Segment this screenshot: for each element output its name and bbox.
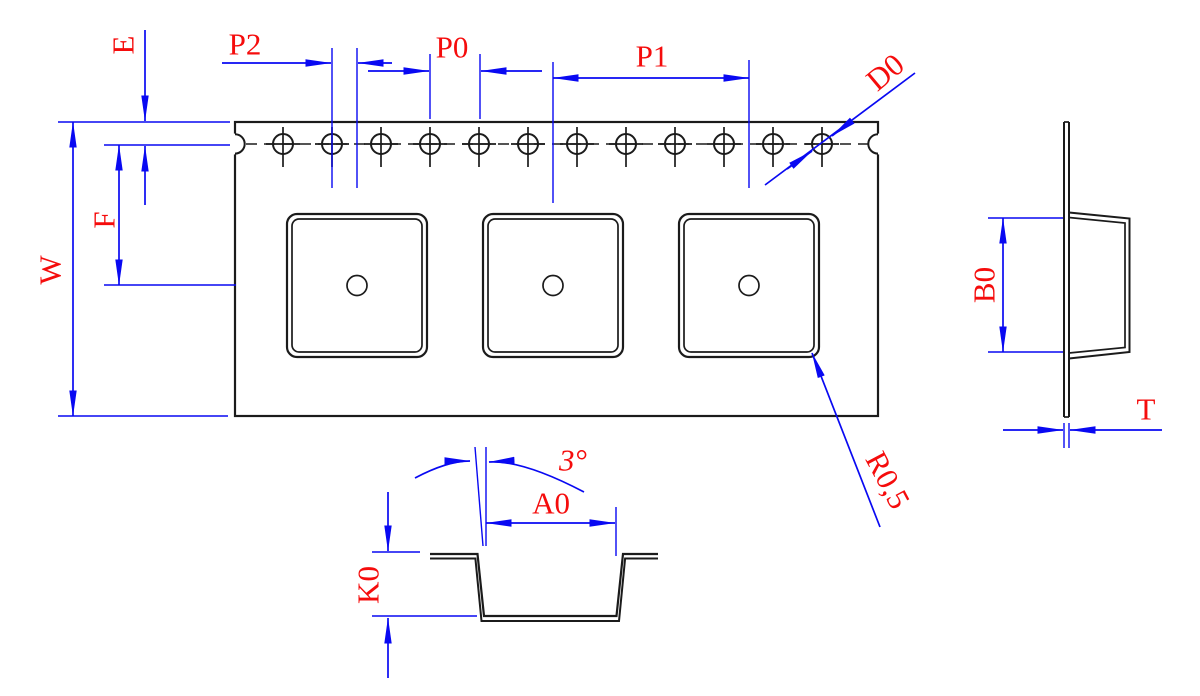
sprocket-hole [511, 127, 545, 167]
sprocket-hole [413, 127, 447, 167]
sprocket-hole [266, 127, 300, 167]
label-f: F [87, 211, 122, 228]
label-w: W [33, 255, 68, 285]
pocket [679, 214, 819, 357]
sprocket-hole [560, 127, 594, 167]
section-view: K0 A0 3° [351, 443, 659, 679]
dim-a0: A0 [475, 447, 616, 556]
leader-d0: D0 [765, 46, 915, 185]
dim-k0: K0 [351, 492, 478, 678]
d0-arrow-upper [832, 123, 849, 136]
label-a0: A0 [532, 486, 570, 521]
label-draft-angle: 3° [558, 443, 587, 478]
pocket-center-hole [739, 276, 759, 296]
sprocket-hole [609, 127, 643, 167]
pockets [287, 214, 819, 357]
carrier-tape-dimension-drawing: W F E P2 P0 P1 D0 [0, 0, 1200, 696]
label-r05: R0,5 [859, 446, 918, 515]
label-b0: B0 [967, 267, 1002, 303]
plan-view [233, 122, 880, 416]
dim-t: T [1003, 392, 1162, 449]
dim-w: W [33, 122, 231, 416]
pocket-center-hole [347, 276, 367, 296]
angle-arc-left [415, 461, 470, 478]
sprocket-hole [756, 127, 790, 167]
label-p2: P2 [229, 27, 262, 62]
label-t: T [1137, 392, 1156, 427]
dim-p0: P0 [368, 30, 542, 120]
dim-p1: P1 [553, 39, 749, 204]
d0-arrow-lower [787, 151, 812, 169]
pocket [483, 214, 623, 357]
leader-r05: R0,5 [812, 353, 917, 527]
side-view-pocket-bulge [1069, 213, 1130, 359]
label-p0: P0 [436, 30, 469, 65]
section-pocket-profile [430, 554, 658, 621]
side-view: B0 T [967, 122, 1163, 448]
side-view-tape-strip [1064, 122, 1069, 417]
pocket [287, 214, 427, 357]
r05-leader-line [812, 353, 880, 527]
tape-edge-notch-right [868, 134, 880, 155]
label-d0: D0 [859, 46, 911, 97]
dim-f: F [87, 145, 237, 285]
dim-p2: P2 [222, 27, 392, 189]
dim-b0: B0 [967, 218, 1064, 352]
dim-e: E [106, 30, 146, 205]
tape-edge-notch-left [233, 134, 245, 155]
label-e: E [106, 36, 141, 55]
a0-draft-reference-line [475, 447, 483, 546]
label-k0: K0 [351, 566, 386, 604]
label-p1: P1 [636, 39, 669, 74]
sprocket-hole [364, 127, 398, 167]
sprocket-hole [462, 127, 496, 167]
sprocket-hole [707, 127, 741, 167]
drawing-canvas: W F E P2 P0 P1 D0 [0, 0, 1200, 696]
pocket-center-hole [543, 276, 563, 296]
sprocket-hole [658, 127, 692, 167]
